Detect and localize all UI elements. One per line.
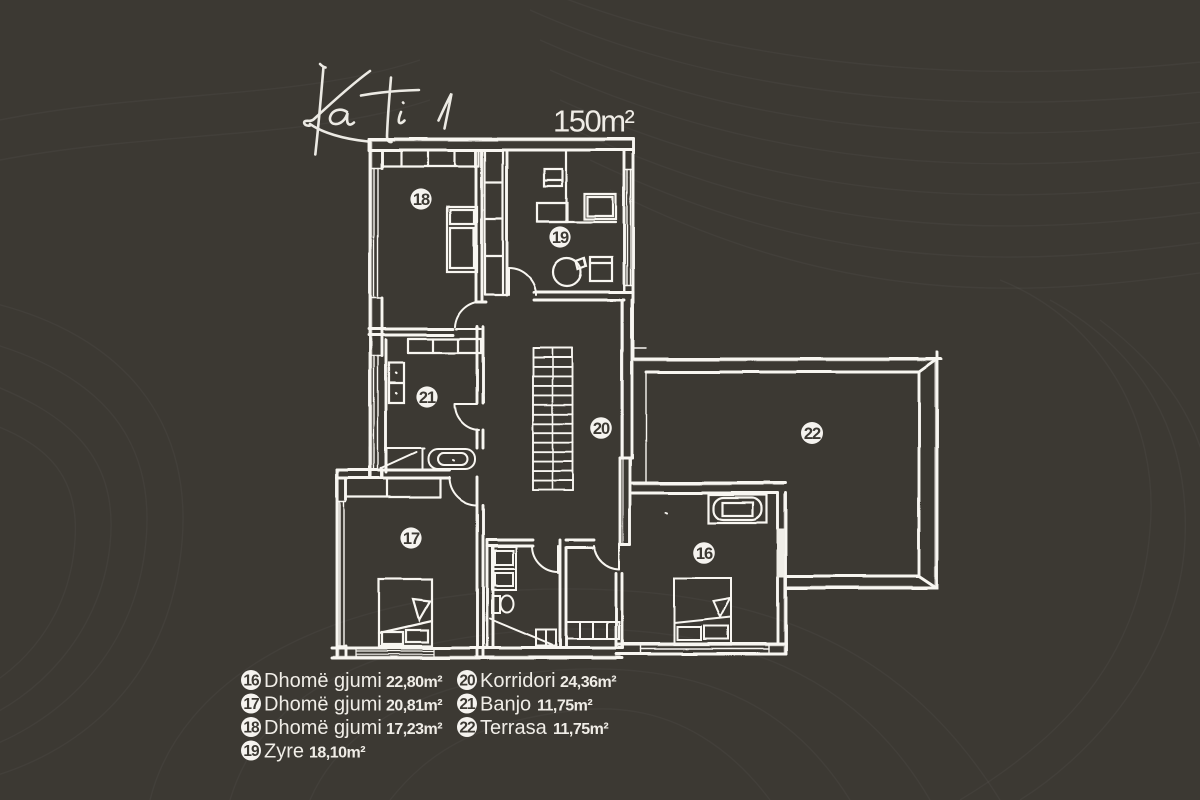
svg-text:Dhomë gjumi: Dhomë gjumi: [264, 717, 382, 739]
svg-text:18: 18: [413, 191, 430, 209]
svg-text:19: 19: [552, 229, 569, 247]
svg-text:21: 21: [419, 389, 436, 407]
svg-text:Dhomë gjumi: Dhomë gjumi: [264, 694, 382, 716]
svg-text:20: 20: [593, 420, 610, 438]
svg-text:20,81m²: 20,81m²: [386, 698, 442, 715]
svg-text:22: 22: [804, 425, 821, 443]
svg-text:24,36m²: 24,36m²: [560, 674, 616, 691]
svg-text:18: 18: [243, 720, 260, 737]
svg-text:19: 19: [243, 743, 260, 760]
svg-text:150m²: 150m²: [553, 104, 635, 139]
svg-text:Dhomë gjumi: Dhomë gjumi: [264, 670, 382, 692]
svg-text:17: 17: [403, 530, 420, 548]
svg-text:21: 21: [459, 696, 476, 713]
svg-text:16: 16: [243, 673, 260, 690]
svg-text:16: 16: [696, 545, 713, 563]
svg-text:17: 17: [243, 696, 259, 713]
svg-text:Zyre: Zyre: [264, 741, 304, 763]
svg-text:11,75m²: 11,75m²: [553, 721, 608, 738]
svg-text:22: 22: [459, 720, 475, 737]
svg-text:Banjo: Banjo: [480, 694, 531, 716]
svg-text:17,23m²: 17,23m²: [386, 721, 442, 738]
svg-text:11,75m²: 11,75m²: [537, 698, 592, 715]
svg-text:22,80m²: 22,80m²: [386, 674, 442, 691]
svg-text:Terrasa: Terrasa: [480, 717, 548, 739]
svg-text:18,10m²: 18,10m²: [309, 745, 365, 762]
svg-text:Korridori: Korridori: [480, 670, 556, 692]
svg-text:20: 20: [459, 673, 475, 690]
